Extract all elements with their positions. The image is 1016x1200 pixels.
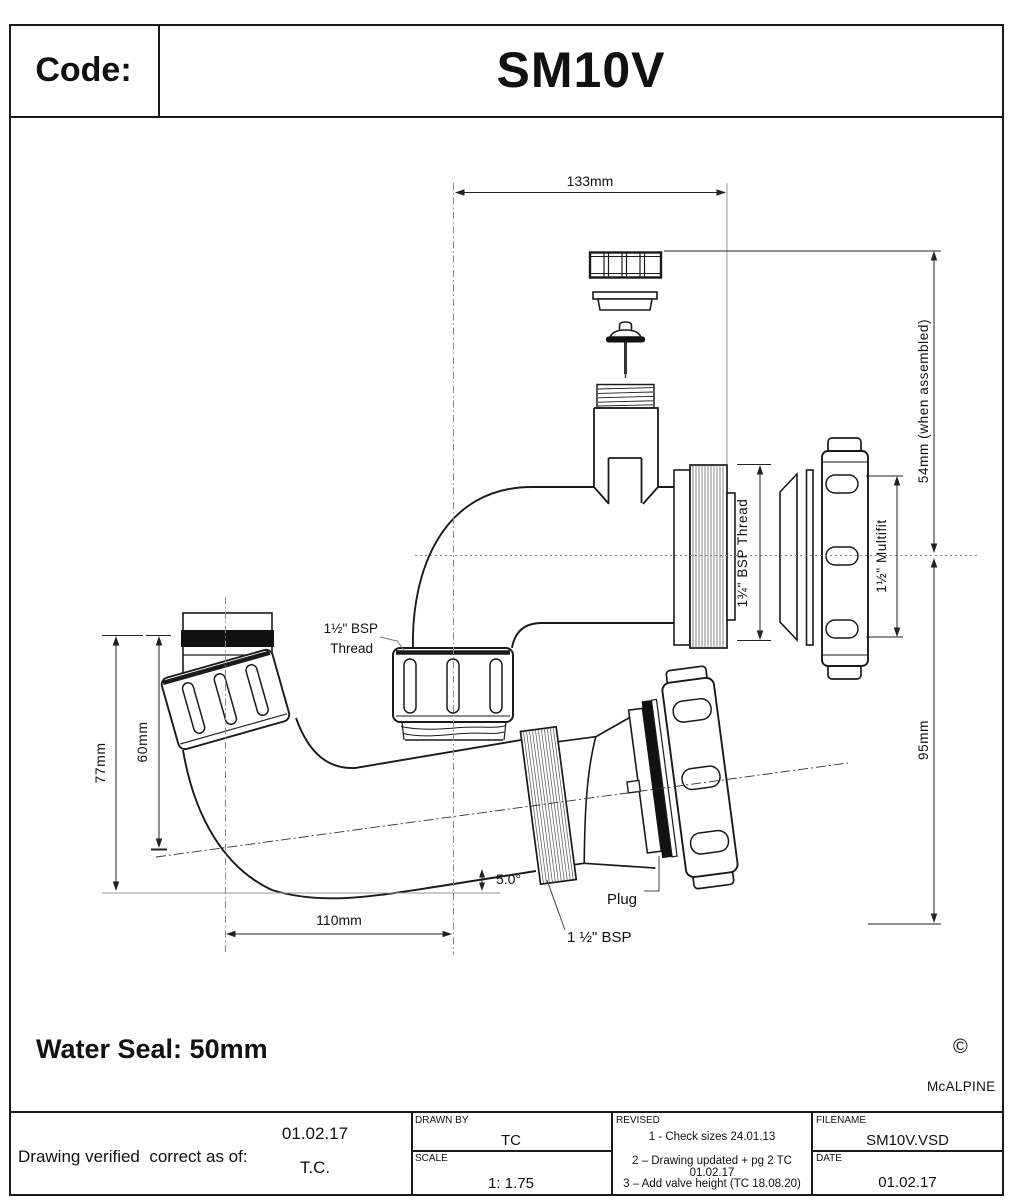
exploded-valve-parts <box>590 253 661 379</box>
label-bsp-112-line1: 1½" BSP <box>324 621 378 636</box>
dim-60mm-label: 60mm <box>134 721 150 762</box>
verified-initials: T.C. <box>250 1158 380 1178</box>
verified-label: Drawing verified correct as of: <box>18 1147 248 1167</box>
dim-133mm-label: 133mm <box>567 173 614 189</box>
technical-drawing: 133mm 54mm (when assembled) 95mm 1½" Mul… <box>0 0 1016 1200</box>
verified-date: 01.02.17 <box>250 1124 380 1144</box>
dim-54mm-label: 54mm (when assembled) <box>916 319 931 483</box>
date-value: 01.02.17 <box>811 1174 1004 1191</box>
revised-label: REVISED <box>616 1115 660 1126</box>
drawn-by-value: TC <box>411 1132 611 1149</box>
water-seal-note: Water Seal: 50mm <box>36 1034 268 1065</box>
filename-label: FILENAME <box>816 1115 866 1126</box>
scale-label: SCALE <box>415 1153 448 1164</box>
label-bsp-112-line2: Thread <box>330 641 373 656</box>
tee-body <box>594 385 658 505</box>
dim-77mm-label: 77mm <box>92 742 108 783</box>
label-multifit: 1½" Multifit <box>874 519 889 593</box>
brand-name: McALPINE <box>927 1079 995 1094</box>
inlet-seal-ring <box>181 630 274 647</box>
revision-3: 3 – Add valve height (TC 18.08.20) <box>612 1178 812 1190</box>
label-bsp-134: 1¾" BSP Thread <box>735 499 750 608</box>
scale-value: 1: 1.75 <box>411 1175 611 1192</box>
exploded-washers <box>780 470 813 645</box>
dim-110mm-label: 110mm <box>316 912 362 928</box>
multifit-nut <box>822 438 868 679</box>
filename-value: SM10V.VSD <box>811 1132 1004 1149</box>
revision-1: 1 - Check sizes 24.01.13 <box>612 1131 812 1143</box>
bsp-tail-label: 1 ½" BSP <box>567 929 632 946</box>
dimension-lines <box>102 193 941 935</box>
copyright-icon: © <box>953 1036 968 1059</box>
drawn-by-label: DRAWN BY <box>415 1115 469 1126</box>
dim-95mm-label: 95mm <box>916 720 931 760</box>
angle-label: 5.0° <box>496 871 521 887</box>
u-bend-body <box>183 718 536 898</box>
tail-outlet-assembly <box>515 665 740 909</box>
plug-label: Plug <box>607 891 637 908</box>
date-label: DATE <box>816 1153 842 1164</box>
drawing-sheet: Code: SM10V <box>0 0 1016 1200</box>
revision-2: 2 – Drawing updated + pg 2 TC 01.02.17 <box>612 1155 812 1179</box>
outlet-thread-134 <box>674 465 735 648</box>
horizontal-arm-and-elbow <box>413 487 677 649</box>
